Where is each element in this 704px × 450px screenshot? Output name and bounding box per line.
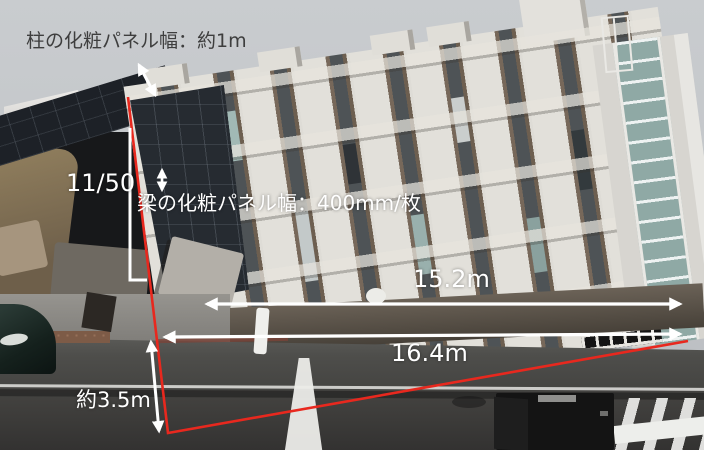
width-lower-label: 16.4m <box>391 340 468 366</box>
width-upper-label: 15.2m <box>413 266 490 292</box>
width-16-4m-arrow <box>165 334 680 337</box>
tilt-ratio-label: 11/50 <box>66 170 135 196</box>
height-label: 約3.5m <box>76 389 151 412</box>
beam-panel-label: 梁の化粧パネル幅：400mm/枚 <box>137 192 421 214</box>
red-survey-line <box>128 97 688 433</box>
survey-annotation-overlay <box>0 0 704 450</box>
annotated-photo: 柱の化粧パネル幅：約1m 11/50 梁の化粧パネル幅：400mm/枚 15.2… <box>0 0 704 450</box>
column-panel-width-arrow <box>139 65 155 95</box>
column-panel-label: 柱の化粧パネル幅：約1m <box>26 31 247 52</box>
